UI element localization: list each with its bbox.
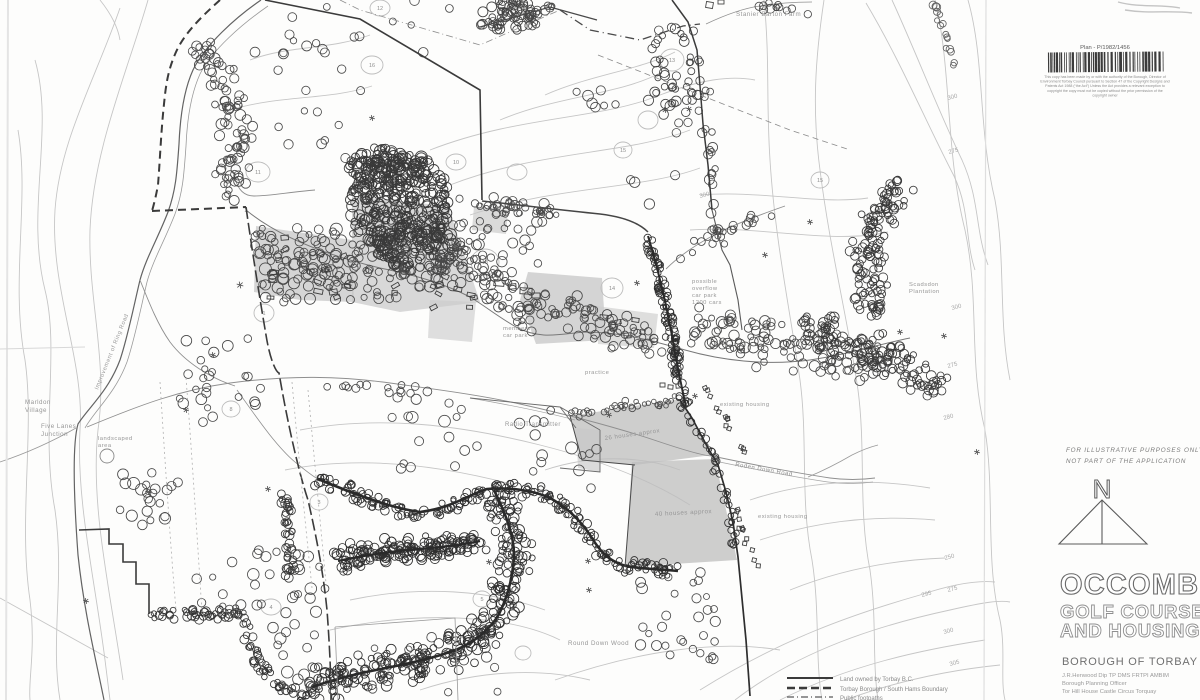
svg-text:Environment Torbay Council pu: Environment Torbay Council pursuant to S… — [1040, 80, 1169, 84]
svg-text:16: 16 — [369, 63, 375, 69]
svg-text:13: 13 — [669, 58, 675, 64]
svg-text:15: 15 — [620, 148, 626, 154]
svg-text:Scadsdon: Scadsdon — [909, 282, 939, 288]
svg-text:4: 4 — [269, 605, 272, 611]
svg-text:copyright the copy must not be: copyright the copy must not be copied wi… — [1047, 89, 1162, 93]
svg-text:practice: practice — [585, 370, 609, 376]
svg-text:10: 10 — [453, 160, 459, 166]
svg-text:area: area — [98, 443, 112, 449]
svg-text:OCCOMBE: OCCOMBE — [1060, 569, 1200, 601]
svg-text:car park: car park — [503, 333, 528, 339]
svg-text:possible: possible — [692, 279, 717, 285]
svg-text:FOR ILLUSTRATIVE PURPOSES ONLY: FOR ILLUSTRATIVE PURPOSES ONLY — [1066, 447, 1200, 454]
svg-text:NOT PART OF THE APPLICATION: NOT PART OF THE APPLICATION — [1066, 458, 1186, 465]
svg-text:existing housing: existing housing — [758, 514, 808, 520]
svg-text:Land owned by Torbay B.C.: Land owned by Torbay B.C. — [840, 677, 914, 683]
svg-text:N: N — [1093, 474, 1112, 504]
svg-text:Radio Transmitter: Radio Transmitter — [505, 422, 561, 428]
svg-text:1200 cars: 1200 cars — [692, 300, 722, 306]
svg-text:Five Lanes: Five Lanes — [41, 423, 76, 430]
svg-text:Stanier Barton Farm: Stanier Barton Farm — [736, 11, 801, 18]
svg-text:existing housing: existing housing — [720, 402, 770, 408]
svg-text:11: 11 — [255, 170, 261, 176]
svg-text:Marldon: Marldon — [25, 399, 51, 406]
svg-text:5: 5 — [480, 597, 483, 603]
svg-text:15: 15 — [817, 178, 823, 184]
svg-text:members: members — [503, 326, 531, 332]
svg-text:copyright owner: copyright owner — [1092, 93, 1118, 97]
svg-text:14: 14 — [609, 286, 615, 292]
svg-text:Public footpaths: Public footpaths — [840, 696, 883, 700]
svg-text:Patents Act 1988 (“the Act”): Patents Act 1988 (“the Act”) Unless the … — [1045, 84, 1165, 88]
svg-text:8: 8 — [229, 407, 232, 413]
svg-text:12: 12 — [377, 6, 383, 12]
svg-text:Tor Hill House Castle Circ: Tor Hill House Castle Circus Torquay — [1062, 689, 1156, 695]
svg-text:1: 1 — [262, 311, 265, 317]
svg-text:Torbay Borough / South Hams: Torbay Borough / South Hams Boundary — [840, 687, 948, 693]
svg-text:GOLF COURSE: GOLF COURSE — [1060, 601, 1200, 622]
svg-text:This copy has been made by or: This copy has been made by or with the a… — [1044, 75, 1165, 79]
svg-text:Village: Village — [25, 407, 47, 414]
svg-text:Round Down Wood: Round Down Wood — [568, 640, 629, 647]
svg-text:BOROUGH OF TORBAY: BOROUGH OF TORBAY — [1062, 656, 1198, 668]
svg-text:Junction: Junction — [41, 431, 68, 438]
svg-text:car park: car park — [692, 293, 717, 299]
svg-text:Plan - P/1982/1456: Plan - P/1982/1456 — [1080, 45, 1130, 51]
svg-text:overflow: overflow — [692, 286, 718, 292]
svg-text:Borough Planning Officer: Borough Planning Officer — [1062, 681, 1127, 687]
svg-text:landscaped: landscaped — [98, 436, 133, 442]
svg-text:J.R.Henwood Dip TP DMS FRTPI: J.R.Henwood Dip TP DMS FRTPI AMBIM — [1062, 673, 1169, 679]
svg-text:AND HOUSING: AND HOUSING — [1060, 620, 1200, 641]
svg-text:Plantation: Plantation — [909, 289, 940, 295]
